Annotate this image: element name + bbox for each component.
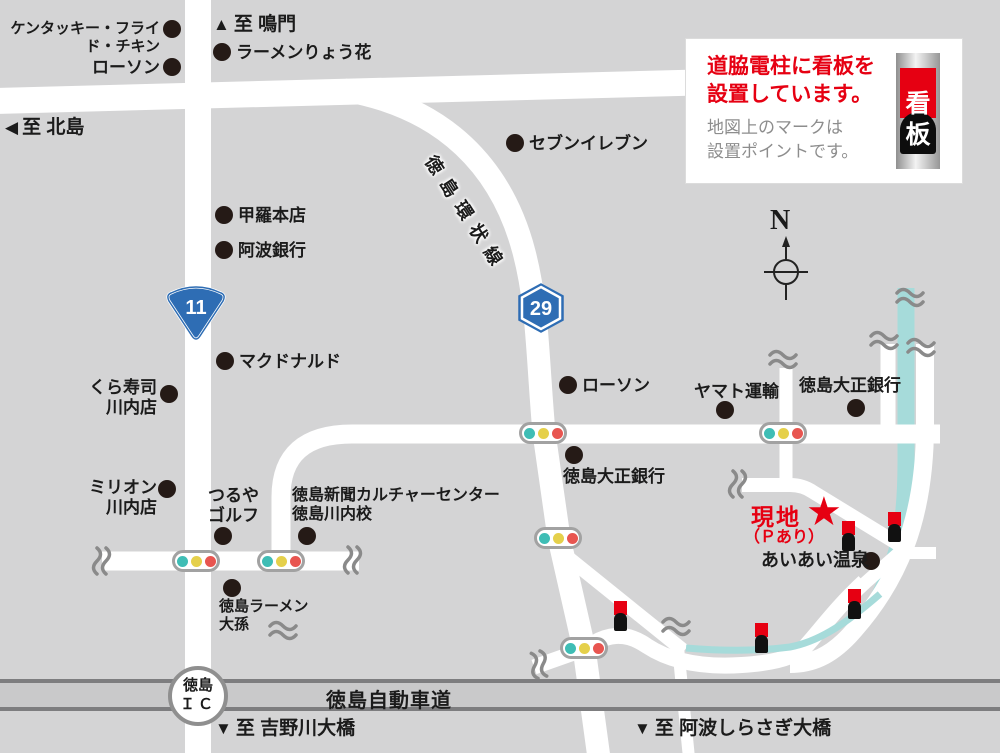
poi-label: 阿波銀行	[238, 241, 306, 261]
svg-text:29: 29	[530, 298, 552, 320]
signboard-marker-icon	[842, 521, 855, 551]
poi-dot	[215, 206, 233, 224]
signboard-marker-icon	[755, 623, 768, 653]
poi-dot	[847, 399, 865, 417]
poi-dot	[716, 401, 734, 419]
signboard-pole-icon: 看 板	[896, 53, 940, 169]
poi-label: ローソン	[582, 376, 650, 396]
poi-dot	[163, 58, 181, 76]
poi-dot	[216, 352, 234, 370]
poi-label: ミリオン 川内店	[85, 478, 157, 518]
ic-name: 徳島	[183, 677, 213, 696]
poi-label: ヤマト運輸	[694, 382, 779, 402]
compass-icon	[758, 236, 814, 302]
poi-dot	[158, 480, 176, 498]
expressway-label: 徳島自動車道	[326, 684, 452, 713]
poi-label: くら寿司 川内店	[85, 378, 157, 418]
traffic-light-icon	[519, 422, 567, 444]
poi-dot	[223, 579, 241, 597]
traffic-light-icon	[534, 527, 582, 549]
route-29-shield: 29	[517, 282, 565, 334]
poi-dot	[215, 241, 233, 259]
poi-label: 徳島大正銀行	[799, 376, 901, 396]
arrow-down-icon: ▼	[215, 719, 236, 738]
legend-box: 道脇電柱に看板を 設置しています。 地図上のマークは 設置ポイントです。 看 板	[685, 38, 963, 184]
poi-label: マクドナルド	[239, 352, 341, 372]
poi-dot	[506, 134, 524, 152]
traffic-light-icon	[560, 637, 608, 659]
poi-label: あいあい温泉	[761, 550, 869, 571]
poi-dot	[213, 43, 231, 61]
direction-kitajima: ◀至 北島	[5, 112, 84, 139]
direction-naruto: ▲至 鳴門	[213, 9, 296, 36]
poi-dot	[163, 20, 181, 38]
poi-dot	[298, 527, 316, 545]
signboard-top-label: 看	[900, 68, 936, 118]
poi-label: ローソン	[60, 58, 160, 78]
signboard-bottom-label: 板	[900, 112, 936, 154]
destination-parking-note: （Ｐあり）	[744, 523, 824, 547]
poi-dot	[565, 446, 583, 464]
poi-dot	[160, 385, 178, 403]
legend-title: 道脇電柱に看板を 設置しています。	[707, 53, 875, 108]
traffic-light-icon	[257, 550, 305, 572]
poi-label: ラーメンりょう花	[236, 43, 371, 63]
poi-label: 徳島ラーメン 大孫	[219, 598, 308, 633]
route-11-shield: 11	[166, 284, 226, 342]
traffic-light-icon	[172, 550, 220, 572]
direction-yoshinogawa-bridge: ▼至 吉野川大橋	[215, 713, 355, 740]
legend-description: 地図上のマークは 設置ポイントです。	[707, 116, 858, 164]
svg-text:11: 11	[185, 297, 206, 319]
traffic-light-icon	[759, 422, 807, 444]
arrow-up-icon: ▲	[213, 15, 234, 34]
compass-north-label: N	[770, 205, 790, 237]
signboard-marker-icon	[848, 589, 861, 619]
poi-label: 徳島新聞カルチャーセンター 徳島川内校	[292, 487, 500, 525]
direction-awa-shirasagi-bridge: ▼至 阿波しらさぎ大橋	[634, 713, 831, 740]
signboard-marker-icon	[888, 512, 901, 542]
arrow-left-icon: ◀	[5, 118, 22, 137]
poi-label: ケンタッキー・フライド・チキン	[2, 20, 160, 55]
poi-dot	[559, 376, 577, 394]
poi-label: 徳島大正銀行	[563, 467, 665, 487]
poi-label: 甲羅本店	[238, 206, 306, 226]
poi-label: セブンイレブン	[529, 134, 648, 154]
arrow-down-icon: ▼	[634, 719, 655, 738]
access-map: 徳島自動車道 徳島 ＩＣ 徳島環状線 11 29 N ★ 現地	[0, 0, 1000, 753]
expressway-band	[0, 679, 1000, 711]
signboard-marker-icon	[614, 601, 627, 631]
poi-dot	[214, 527, 232, 545]
ic-abbr: ＩＣ	[180, 696, 216, 715]
poi-label: つるや ゴルフ	[208, 486, 259, 526]
